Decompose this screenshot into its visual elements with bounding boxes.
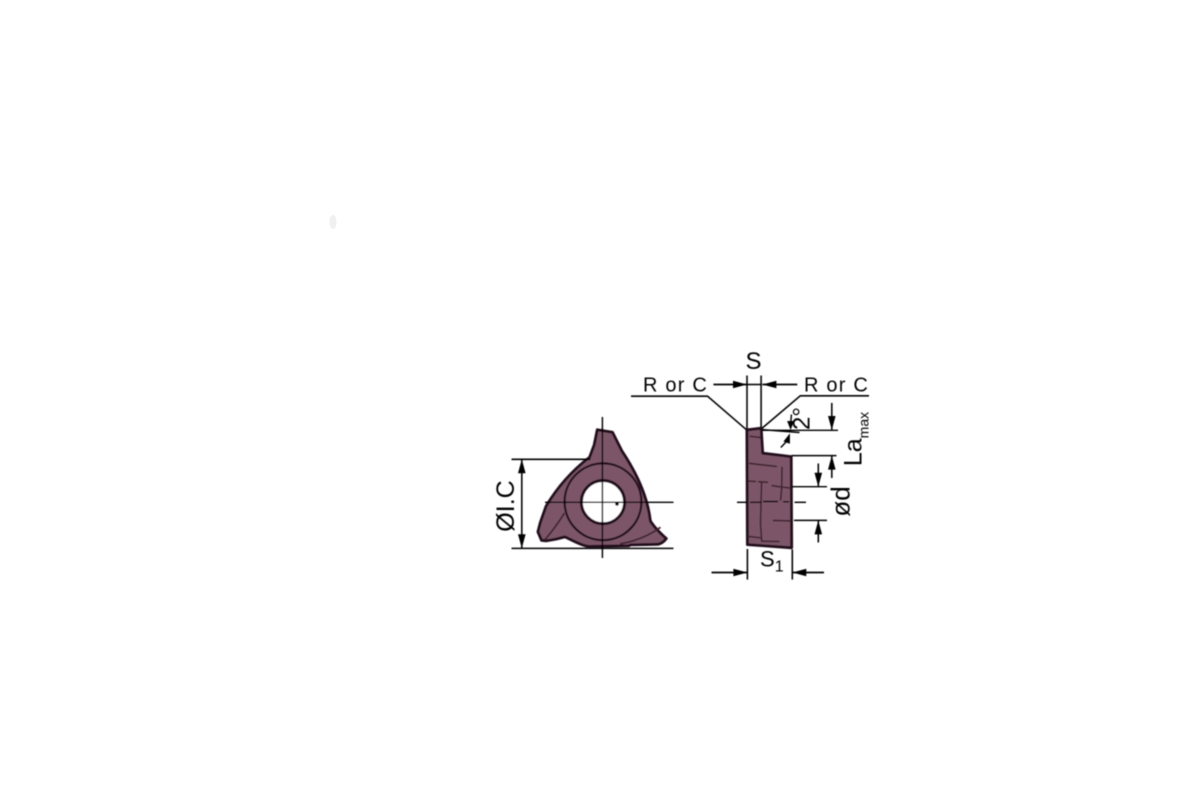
svg-text:2°: 2° xyxy=(789,407,816,430)
svg-text:ØI.C: ØI.C xyxy=(492,480,520,531)
svg-text:R or C: R or C xyxy=(643,375,708,397)
svg-text:S: S xyxy=(745,348,761,375)
svg-text:ød: ød xyxy=(826,486,856,516)
svg-text:R or C: R or C xyxy=(804,375,869,397)
